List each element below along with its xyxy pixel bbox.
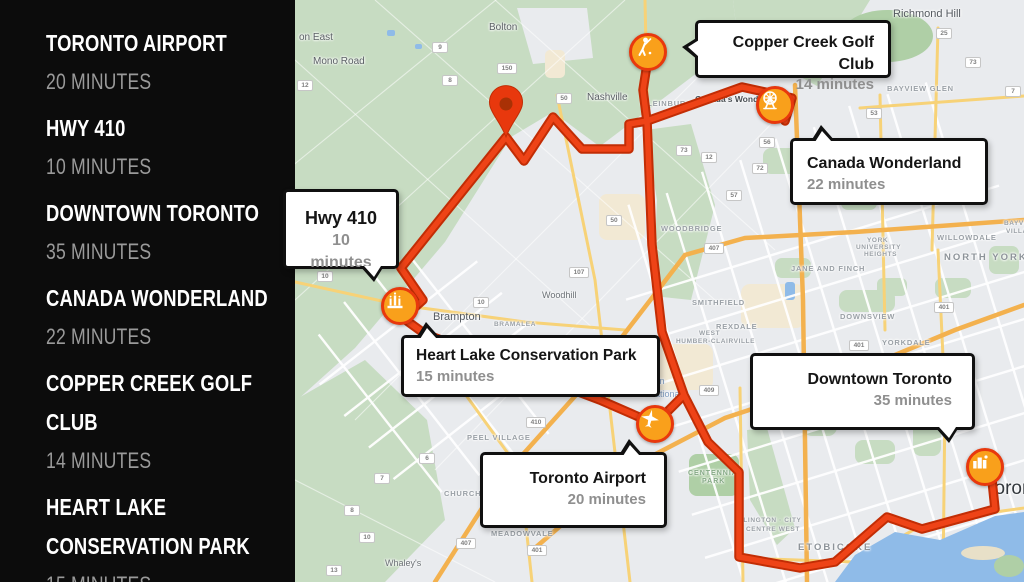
callout-tail xyxy=(811,125,835,141)
callout-tail xyxy=(416,322,440,338)
destination-name: DOWNTOWN TORONTO xyxy=(46,194,294,233)
sidebar: TORONTO AIRPORT 20 MINUTES HWY 410 10 MI… xyxy=(0,0,295,582)
callout-title: Canada Wonderland xyxy=(807,153,971,175)
callout-time: 15 minutes xyxy=(416,367,645,387)
callout-copper-creek-golf-club: Copper Creek Golf Club 14 minutes xyxy=(695,20,891,78)
callout-title: Toronto Airport xyxy=(497,468,646,490)
callout-downtown-toronto: Downtown Toronto 35 minutes xyxy=(750,353,975,430)
drive-time-map-infographic: TORONTO AIRPORT 20 MINUTES HWY 410 10 MI… xyxy=(0,0,1024,582)
destination-time: 14 MINUTES xyxy=(46,442,294,479)
sidebar-entry-downtown-toronto: DOWNTOWN TORONTO 35 MINUTES xyxy=(46,194,294,270)
callout-toronto-airport: Toronto Airport 20 minutes xyxy=(480,452,667,528)
destination-name: CANADA WONDERLAND xyxy=(46,279,294,318)
callout-hwy-410: Hwy 410 10 minutes xyxy=(283,189,399,269)
sidebar-entry-canada-wonderland: CANADA WONDERLAND 22 MINUTES xyxy=(46,279,294,355)
marker-downtown-toronto xyxy=(966,448,1004,486)
destination-time: 22 MINUTES xyxy=(46,318,294,355)
callout-title: Downtown Toronto xyxy=(767,369,952,391)
sidebar-entry-toronto-airport: TORONTO AIRPORT 20 MINUTES xyxy=(46,24,294,100)
marker-hwy-410-heart-lake xyxy=(381,287,419,325)
sidebar-entry-copper-creek: COPPER CREEK GOLF CLUB 14 MINUTES xyxy=(46,364,294,479)
destination-time: 15 MINUTES xyxy=(46,566,294,582)
destination-time: 20 MINUTES xyxy=(46,63,294,100)
callout-tail xyxy=(935,427,959,443)
sidebar-entry-heart-lake: HEART LAKE CONSERVATION PARK 15 MINUTES xyxy=(46,488,294,582)
destination-time: 35 MINUTES xyxy=(46,233,294,270)
callout-tail xyxy=(360,266,384,282)
destination-name: TORONTO AIRPORT xyxy=(46,24,294,63)
marker-toronto-airport xyxy=(636,405,674,443)
destination-time: 10 MINUTES xyxy=(46,148,294,185)
callout-time: 35 minutes xyxy=(767,391,952,411)
callout-tail xyxy=(682,37,698,60)
sidebar-entry-hwy-410: HWY 410 10 MINUTES xyxy=(46,109,294,185)
callout-title: Heart Lake Conservation Park xyxy=(416,346,645,367)
callout-time: 22 minutes xyxy=(807,175,971,195)
callout-title: Hwy 410 xyxy=(300,206,382,230)
callout-time: 14 minutes xyxy=(712,75,874,95)
callout-heart-lake-conservation-park: Heart Lake Conservation Park 15 minutes xyxy=(401,335,660,397)
destination-name: HEART LAKE CONSERVATION PARK xyxy=(46,488,294,566)
callout-time: 20 minutes xyxy=(497,490,646,510)
marker-copper-creek-golf xyxy=(629,33,667,71)
destination-name: COPPER CREEK GOLF CLUB xyxy=(46,364,294,442)
callout-tail xyxy=(619,439,643,455)
destination-name: HWY 410 xyxy=(46,109,294,148)
callout-title: Copper Creek Golf Club xyxy=(712,32,874,75)
map-pin-icon xyxy=(490,86,523,137)
callout-canada-wonderland: Canada Wonderland 22 minutes xyxy=(790,138,988,205)
